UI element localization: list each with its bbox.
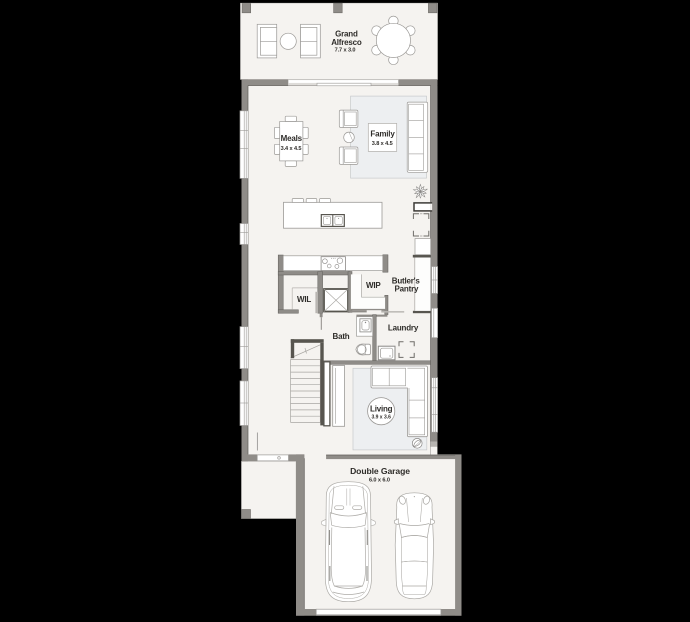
svg-text:Living: Living — [370, 404, 393, 413]
svg-text:Pantry: Pantry — [395, 285, 419, 294]
svg-text:3.8 x 4.5: 3.8 x 4.5 — [372, 141, 393, 147]
svg-text:WIL: WIL — [297, 295, 311, 304]
svg-text:Laundry: Laundry — [388, 323, 419, 332]
svg-text:Family: Family — [370, 130, 395, 139]
svg-text:Meals: Meals — [281, 134, 303, 143]
svg-text:Alfresco: Alfresco — [331, 38, 362, 47]
svg-text:3.9 x 3.6: 3.9 x 3.6 — [371, 414, 391, 420]
svg-text:Double Garage: Double Garage — [350, 466, 410, 476]
svg-text:7.7 x 3.0: 7.7 x 3.0 — [335, 48, 356, 54]
svg-text:6.0 x 6.0: 6.0 x 6.0 — [369, 478, 390, 484]
svg-text:3.4 x 4.5: 3.4 x 4.5 — [281, 146, 302, 152]
svg-text:Bath: Bath — [333, 332, 350, 341]
svg-text:WIP: WIP — [366, 281, 381, 290]
